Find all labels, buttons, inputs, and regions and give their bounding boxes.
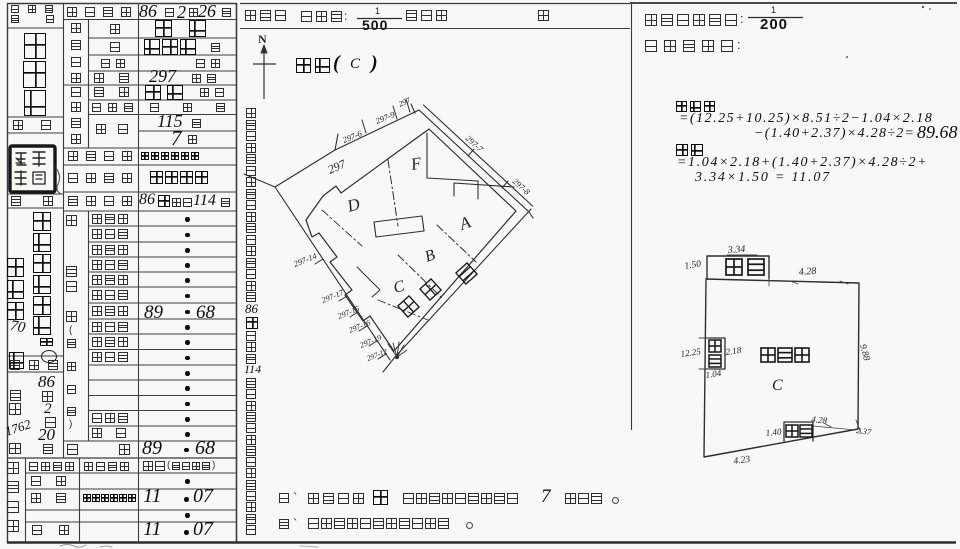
svg-text:297-16: 297-16 xyxy=(347,318,371,335)
svg-text:D: D xyxy=(344,194,362,216)
svg-text:4.23: 4.23 xyxy=(733,455,751,467)
svg-text:297: 297 xyxy=(326,156,349,177)
svg-text:4.28: 4.28 xyxy=(798,266,816,278)
svg-text:N: N xyxy=(258,32,267,46)
svg-text:9.88: 9.88 xyxy=(857,343,871,362)
svg-text:297-12: 297-12 xyxy=(365,346,388,362)
svg-text:2.18: 2.18 xyxy=(725,345,742,357)
svg-text:1.04: 1.04 xyxy=(705,368,722,380)
svg-text:F: F xyxy=(408,153,423,174)
svg-text:297-14: 297-14 xyxy=(292,250,319,269)
svg-text:C: C xyxy=(392,278,407,297)
svg-text:12.25: 12.25 xyxy=(680,346,702,359)
svg-text:B: B xyxy=(423,246,438,265)
svg-text:297-19: 297-19 xyxy=(358,333,382,350)
svg-text:297-17: 297-17 xyxy=(320,288,345,305)
svg-text:C: C xyxy=(772,377,783,394)
svg-text:A: A xyxy=(456,212,474,234)
svg-text:3.34: 3.34 xyxy=(726,244,745,256)
svg-text:297-7: 297-7 xyxy=(464,133,486,154)
svg-text:297-9: 297-9 xyxy=(374,109,397,126)
svg-text:1.50: 1.50 xyxy=(684,259,702,272)
svg-text:1.40: 1.40 xyxy=(765,426,782,438)
svg-text:297: 297 xyxy=(397,95,413,109)
